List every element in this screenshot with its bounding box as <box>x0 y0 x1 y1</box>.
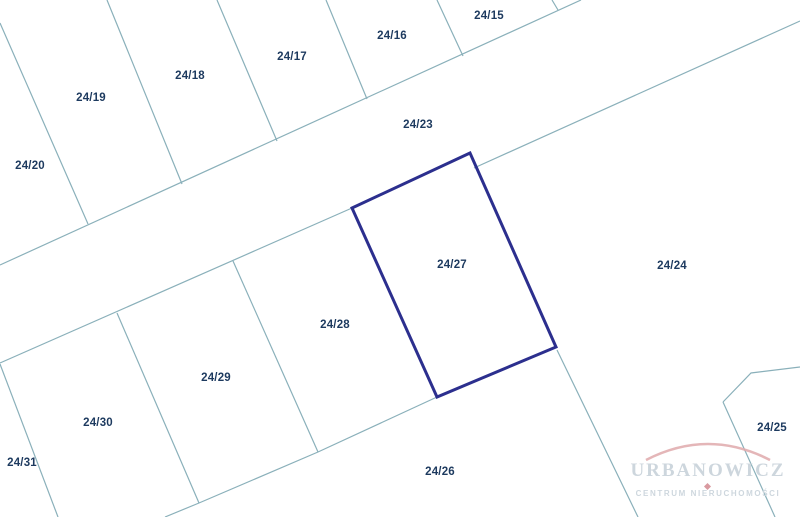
parcel-boundary-divider-2430-2429 <box>117 313 199 503</box>
parcel-boundary-divider-2418-2417 <box>217 0 277 141</box>
parcel-boundary-road-lower-edge-west <box>0 208 352 363</box>
parcel-map-canvas <box>0 0 800 517</box>
parcel-boundary-road-upper-edge <box>0 0 581 265</box>
parcel-boundary-divider-2425-west <box>723 402 775 517</box>
cadastral-map: 24/1524/1624/1724/1824/1924/2024/2324/24… <box>0 0 800 517</box>
parcel-boundary-road-lower-edge-east <box>474 21 800 168</box>
parcel-boundary-divider-2416-2415 <box>437 0 463 56</box>
parcel-boundary-divider-2426-2425 <box>557 350 638 517</box>
parcel-boundary-parcel-2425-north-edge <box>723 367 800 402</box>
parcel-boundary-divider-2419-2418 <box>107 0 182 184</box>
parcel-boundary-divider-2431-2430 <box>0 364 58 517</box>
parcel-boundary-divider-2417-2416 <box>326 0 367 99</box>
parcel-boundary-divider-2420-2419 <box>0 23 88 224</box>
highlighted-parcel-outline <box>352 153 556 397</box>
parcel-boundary-divider-2415-east <box>552 0 558 10</box>
parcel-boundary-divider-2429-2428 <box>233 261 318 452</box>
